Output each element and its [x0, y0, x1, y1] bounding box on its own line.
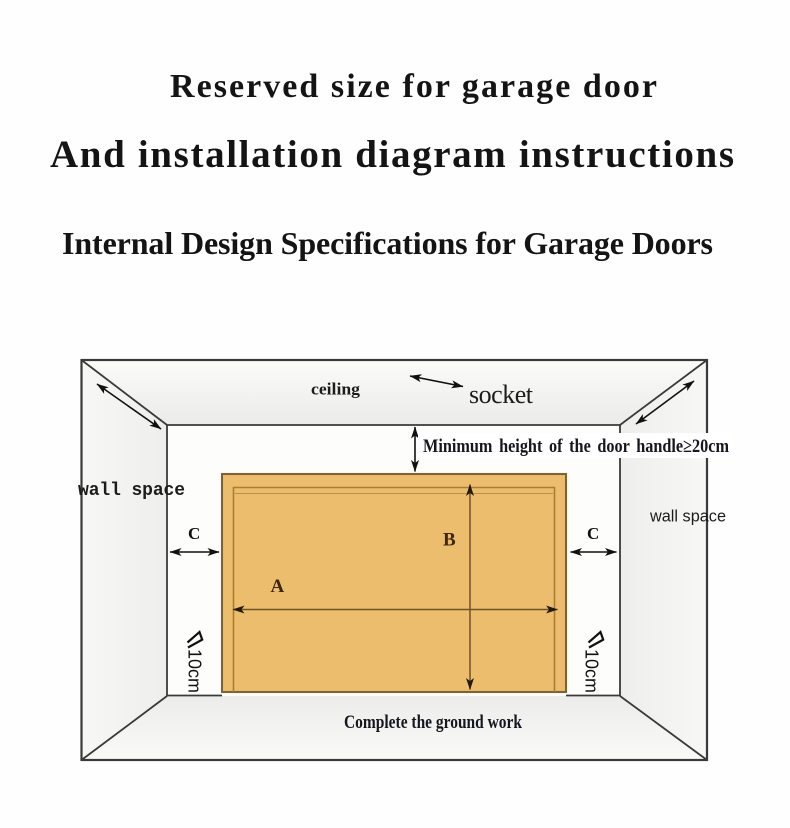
svg-text:Reserved size for garage door: Reserved size for garage door [170, 68, 657, 105]
svg-text:ceiling: ceiling [311, 380, 361, 399]
svg-text:10cm: 10cm [185, 649, 205, 693]
svg-text:wall space: wall space [78, 481, 185, 501]
svg-text:Internal Design Specifications: Internal Design Specifications for Garag… [62, 225, 713, 261]
svg-text:10cm: 10cm [582, 649, 602, 693]
svg-text:And installation diagram instr: And installation diagram instructions [50, 133, 734, 176]
svg-text:Complete the ground work: Complete the ground work [344, 712, 522, 733]
svg-text:wall space: wall space [649, 507, 726, 526]
svg-text:C: C [587, 524, 599, 543]
svg-text:Minimum height of the door han: Minimum height of the door handle≥20cm [423, 436, 729, 457]
svg-text:socket: socket [469, 380, 534, 409]
svg-text:A: A [271, 576, 285, 597]
svg-text:B: B [443, 530, 456, 551]
svg-text:C: C [188, 524, 200, 543]
